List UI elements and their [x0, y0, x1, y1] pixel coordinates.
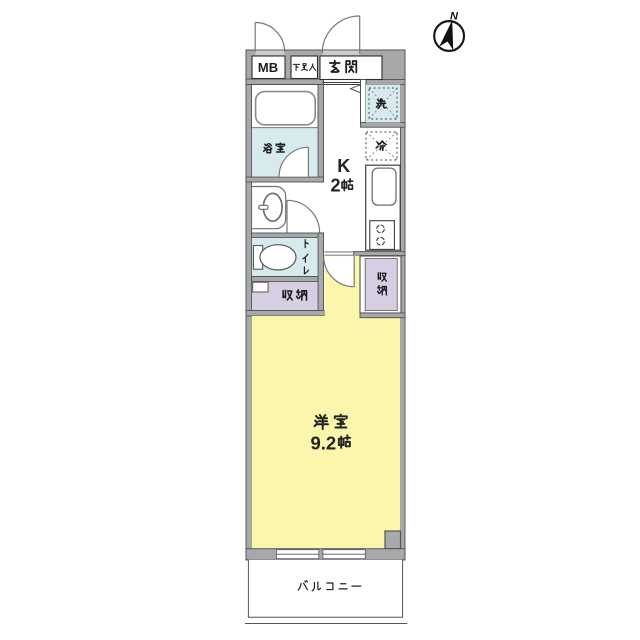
svg-text:MB: MB — [258, 60, 278, 75]
svg-text:K: K — [337, 156, 350, 176]
svg-text:N: N — [450, 11, 459, 23]
svg-text:2: 2 — [330, 176, 340, 196]
svg-text:9.2: 9.2 — [311, 433, 337, 454]
